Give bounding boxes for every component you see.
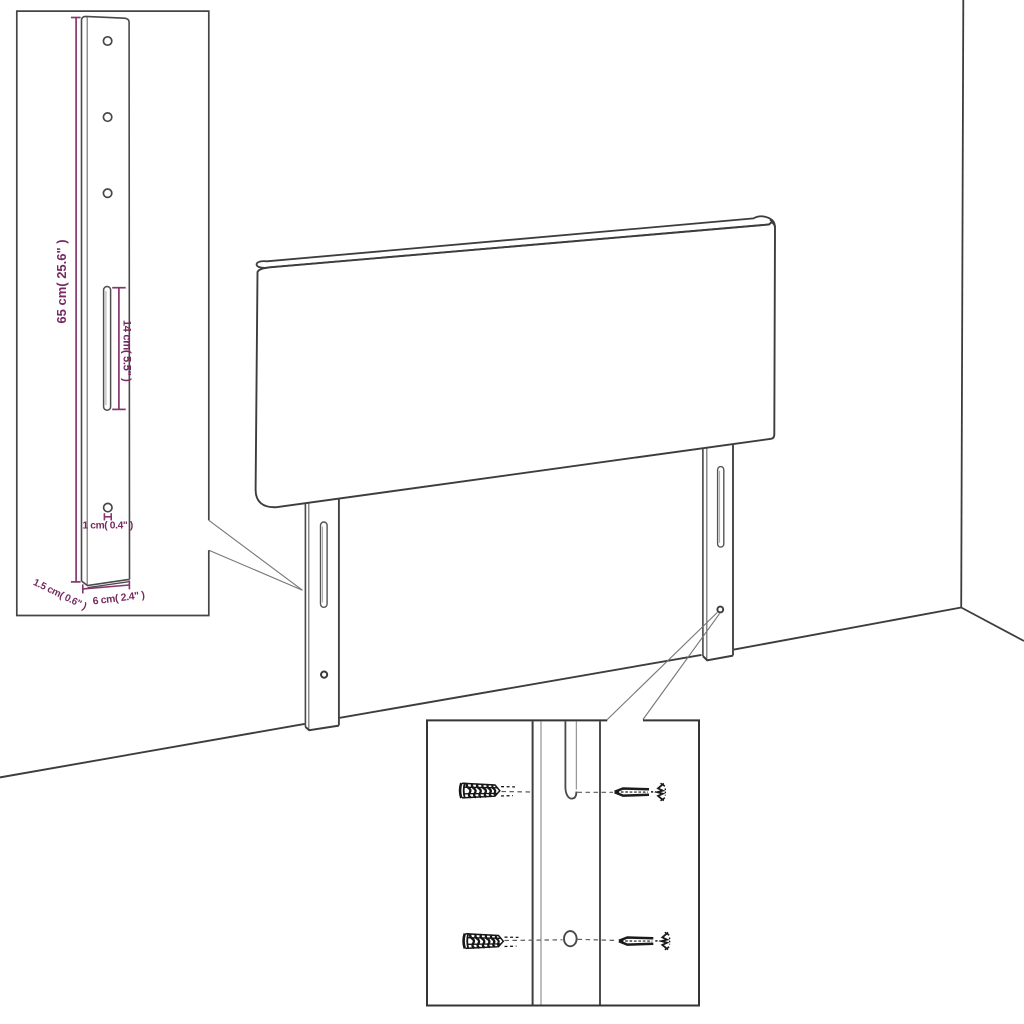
svg-text:1 cm( 0.4" ): 1 cm( 0.4" )	[82, 521, 132, 532]
svg-text:14 cm( 5.5" ): 14 cm( 5.5" )	[120, 320, 132, 382]
svg-text:65 cm( 25.6" ): 65 cm( 25.6" )	[54, 239, 69, 323]
